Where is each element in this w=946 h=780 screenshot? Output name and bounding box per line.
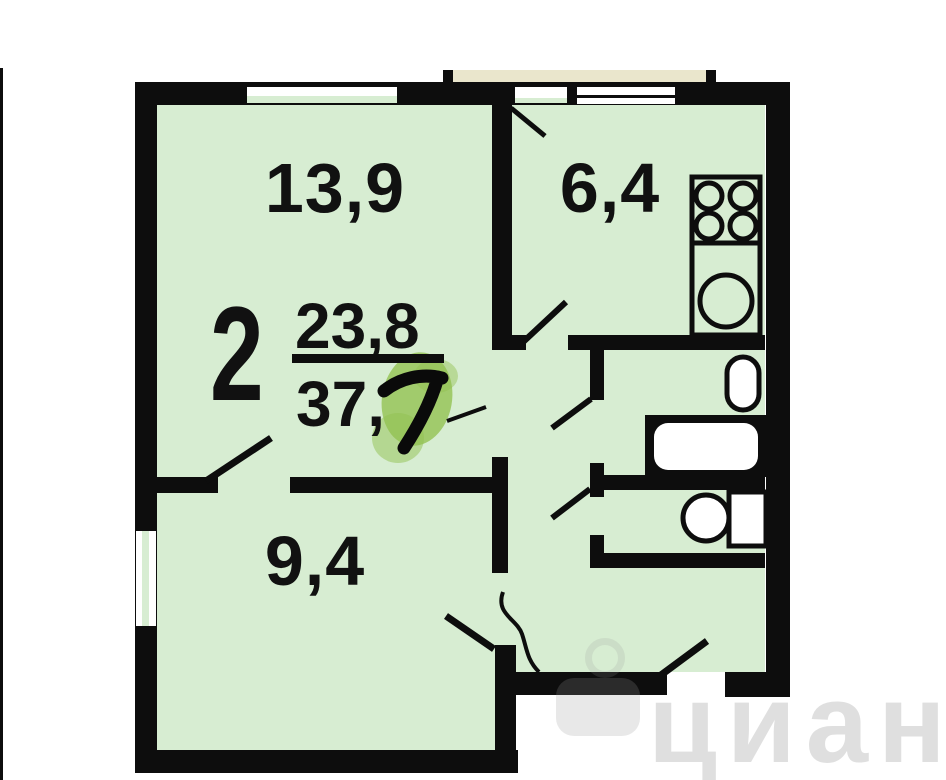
watermark-text: циан [648,668,946,780]
kitchen-area-label: 6,4 [510,153,710,223]
watermark-pin-icon [585,638,625,678]
handwritten-slash [447,407,486,421]
washbasin-icon [727,357,759,410]
highlight-blob [372,347,460,463]
rooms-count-label: 2 [210,288,264,422]
toilet-icon [683,492,766,546]
fraction-bar [292,354,444,363]
room-small-area-label: 9,4 [215,526,415,596]
living-area-label: 23,8 [295,294,420,358]
room-large-area-label: 13,9 [235,153,435,223]
kitchen-sink-icon [692,243,760,335]
total-area-label: 37, [296,372,385,436]
door-swing-wc [552,489,590,518]
watermark-logo-icon [556,678,640,736]
door-swing-balcony [511,108,545,136]
door-swing-bathroom [552,399,591,428]
door-swing-kitchen [521,302,566,344]
entrance-squiggle-mark [501,592,539,672]
door-swing-room-small [206,438,271,481]
bathtub-icon [645,415,766,477]
floor-plan: 13,9 6,4 9,4 2 23,8 37, циан [0,0,946,780]
door-swing-hall-room [446,616,494,649]
